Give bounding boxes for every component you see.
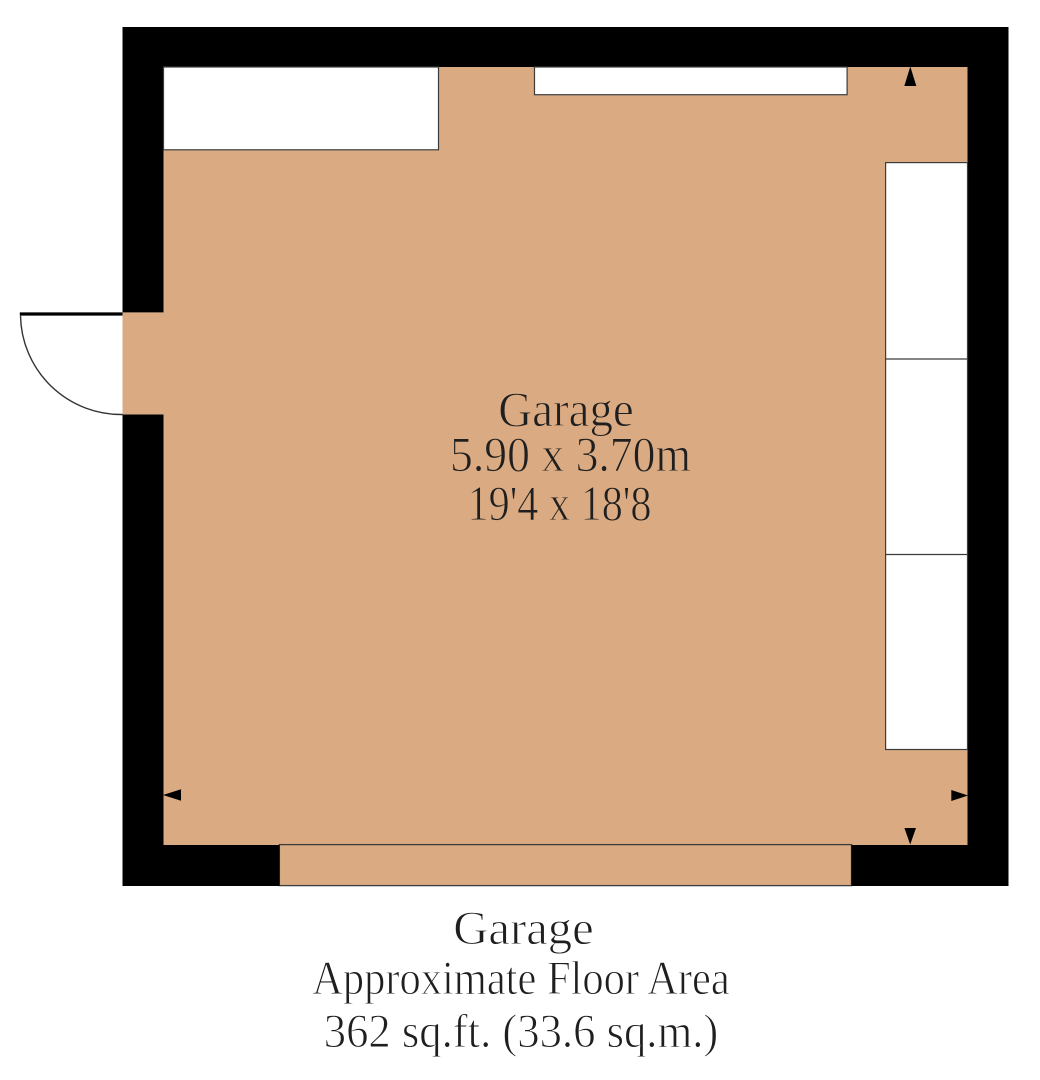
- svg-text:Garage: Garage: [453, 902, 594, 955]
- svg-text:19'4 x 18'8: 19'4 x 18'8: [468, 475, 652, 531]
- svg-text:362 sq.ft. (33.6 sq.m.): 362 sq.ft. (33.6 sq.m.): [324, 1005, 719, 1058]
- svg-text:Approximate Floor Area: Approximate Floor Area: [312, 952, 730, 1005]
- svg-text:5.90 x 3.70m: 5.90 x 3.70m: [450, 426, 691, 482]
